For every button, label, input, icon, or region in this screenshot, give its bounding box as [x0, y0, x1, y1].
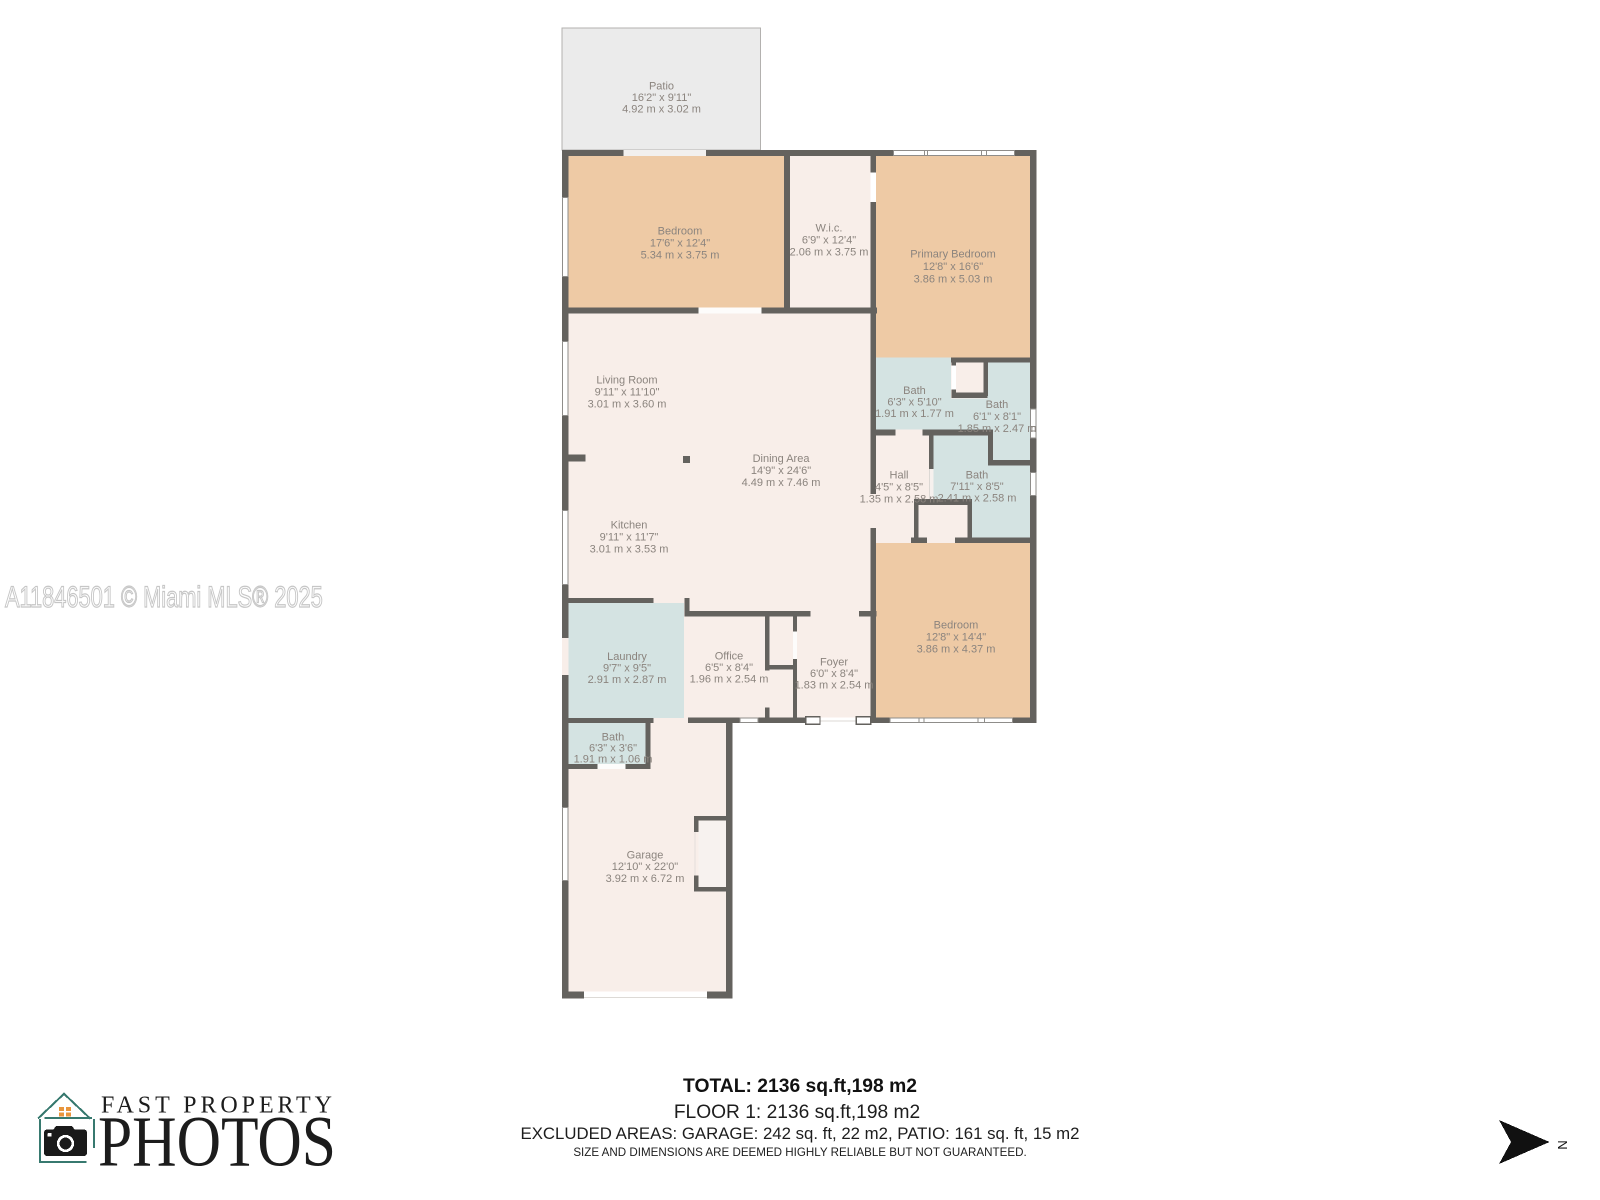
svg-text:1.91 m x 1.77 m: 1.91 m x 1.77 m	[875, 408, 954, 420]
svg-text:9'11" x 11'10": 9'11" x 11'10"	[595, 387, 660, 399]
svg-text:2.41 m x 2.58 m: 2.41 m x 2.58 m	[938, 493, 1017, 505]
svg-text:Bedroom: Bedroom	[934, 620, 979, 632]
svg-text:1.91 m x 1.06 m: 1.91 m x 1.06 m	[574, 754, 653, 766]
svg-text:1.35 m x 2.58 m: 1.35 m x 2.58 m	[860, 494, 939, 506]
svg-text:Bath: Bath	[966, 470, 989, 482]
svg-text:3.01 m x 3.60 m: 3.01 m x 3.60 m	[588, 399, 667, 411]
svg-text:3.86 m x 5.03 m: 3.86 m x 5.03 m	[914, 274, 993, 286]
svg-text:EXCLUDED AREAS: GARAGE: 242 sq: EXCLUDED AREAS: GARAGE: 242 sq. ft, 22 m…	[521, 1124, 1080, 1143]
svg-text:5.34 m x 3.75 m: 5.34 m x 3.75 m	[641, 250, 720, 262]
svg-text:N: N	[1555, 1140, 1570, 1149]
svg-text:4.92 m x 3.02 m: 4.92 m x 3.02 m	[622, 104, 701, 116]
svg-text:1.85 m x 2.47 m: 1.85 m x 2.47 m	[958, 423, 1037, 435]
svg-text:Dining Area: Dining Area	[753, 453, 811, 465]
svg-text:Primary Bedroom: Primary Bedroom	[910, 249, 996, 261]
svg-text:16'2" x 9'11": 16'2" x 9'11"	[632, 92, 692, 104]
svg-text:9'11" x 11'7": 9'11" x 11'7"	[600, 532, 659, 544]
svg-text:Kitchen: Kitchen	[611, 520, 648, 532]
svg-text:Garage: Garage	[627, 850, 664, 862]
svg-text:PHOTOS: PHOTOS	[98, 1102, 336, 1182]
svg-text:17'6" x 12'4": 17'6" x 12'4"	[650, 238, 710, 250]
svg-text:7'11" x 8'5": 7'11" x 8'5"	[950, 481, 1003, 493]
svg-text:1.83 m x 2.54 m: 1.83 m x 2.54 m	[795, 680, 874, 692]
svg-text:6'0" x 8'4": 6'0" x 8'4"	[810, 668, 858, 680]
svg-text:Foyer: Foyer	[820, 657, 848, 669]
svg-text:6'3" x 5'10": 6'3" x 5'10"	[887, 397, 941, 409]
svg-text:4'5" x 8'5": 4'5" x 8'5"	[875, 482, 923, 494]
svg-text:Bath: Bath	[903, 385, 926, 397]
svg-text:2.91 m x 2.87 m: 2.91 m x 2.87 m	[588, 674, 667, 686]
svg-text:Patio: Patio	[649, 81, 674, 93]
svg-text:9'7" x 9'5": 9'7" x 9'5"	[603, 663, 651, 675]
svg-text:4.49 m x 7.46 m: 4.49 m x 7.46 m	[742, 477, 821, 489]
svg-text:6'5" x 8'4": 6'5" x 8'4"	[705, 662, 753, 674]
svg-text:Bath: Bath	[986, 399, 1009, 411]
svg-text:Laundry: Laundry	[607, 651, 647, 663]
svg-text:6'1" x 8'1": 6'1" x 8'1"	[973, 411, 1021, 423]
svg-text:1.96 m x 2.54 m: 1.96 m x 2.54 m	[690, 674, 769, 686]
svg-text:3.92 m x 6.72 m: 3.92 m x 6.72 m	[606, 873, 685, 885]
svg-text:Bedroom: Bedroom	[658, 226, 703, 238]
svg-text:W.i.c.: W.i.c.	[816, 223, 843, 235]
svg-text:Hall: Hall	[890, 470, 909, 482]
svg-text:3.01 m x 3.53 m: 3.01 m x 3.53 m	[590, 544, 669, 556]
svg-text:A11846501 © Miami MLS® 2025: A11846501 © Miami MLS® 2025	[5, 580, 323, 614]
svg-text:3.86 m x 4.37 m: 3.86 m x 4.37 m	[917, 644, 996, 656]
svg-text:TOTAL: 2136 sq.ft,198 m2: TOTAL: 2136 sq.ft,198 m2	[683, 1076, 917, 1097]
svg-text:Office: Office	[715, 651, 744, 663]
svg-text:Living Room: Living Room	[596, 375, 657, 387]
svg-text:14'9" x 24'6": 14'9" x 24'6"	[751, 465, 811, 477]
svg-text:2.06 m x 3.75 m: 2.06 m x 3.75 m	[790, 247, 869, 259]
svg-text:SIZE AND DIMENSIONS ARE DEEMED: SIZE AND DIMENSIONS ARE DEEMED HIGHLY RE…	[573, 1146, 1026, 1159]
svg-text:12'10" x 22'0": 12'10" x 22'0"	[612, 861, 679, 873]
svg-text:12'8" x 14'4": 12'8" x 14'4"	[926, 632, 986, 644]
svg-text:6'9" x 12'4": 6'9" x 12'4"	[802, 235, 856, 247]
svg-text:FLOOR 1: 2136 sq.ft,198 m2: FLOOR 1: 2136 sq.ft,198 m2	[674, 1102, 920, 1123]
svg-text:12'8" x 16'6": 12'8" x 16'6"	[923, 261, 983, 273]
